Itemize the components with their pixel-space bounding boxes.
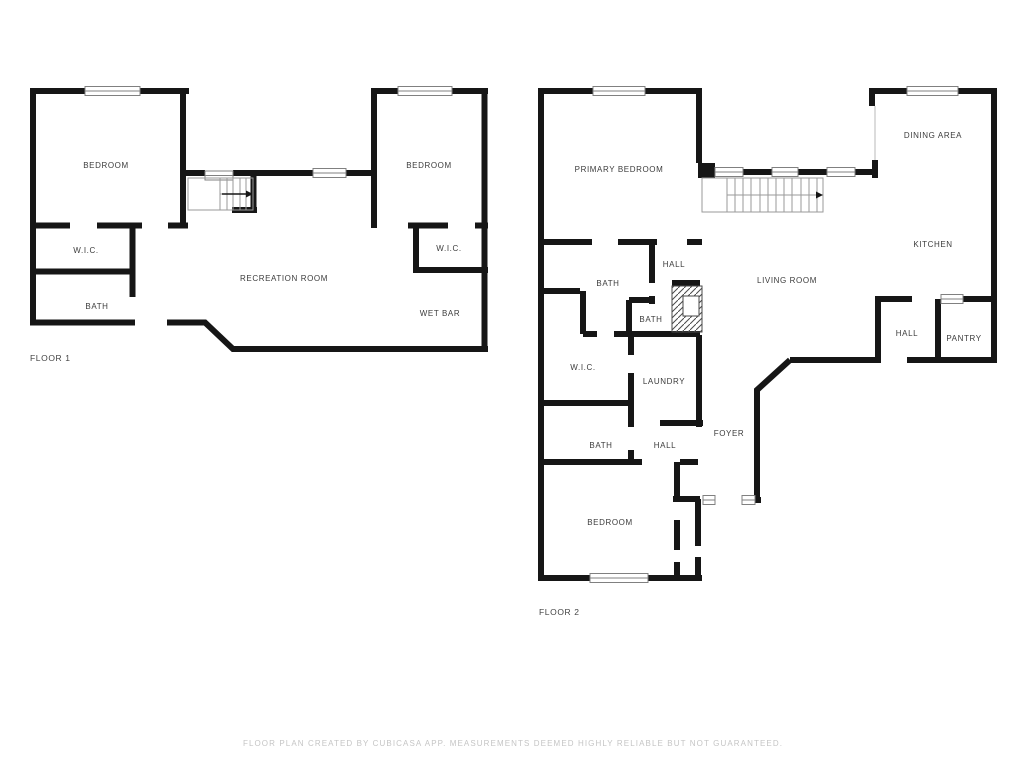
floor1-title: FLOOR 1 [30,353,71,363]
floor2-hall-top-label: HALL [663,260,685,269]
floor1-plan: BEDROOM BEDROOM W.I.C. BATH RECREATION R… [30,87,488,364]
floor1-wet-bar-label: WET BAR [420,309,461,318]
floor1-bedroom-right-label: BEDROOM [406,161,452,170]
floor2-pantry-label: PANTRY [946,334,981,343]
floor2-hall-bottom-label: HALL [654,441,676,450]
floor2-bath-top-label: BATH [596,279,619,288]
footer-disclaimer: FLOOR PLAN CREATED BY CUBICASA APP. MEAS… [243,739,783,748]
floor2-wic-label: W.I.C. [570,363,595,372]
floor1-bath-label: BATH [85,302,108,311]
floor2-living-room-label: LIVING ROOM [757,276,817,285]
floor2-laundry-label: LAUNDRY [643,377,685,386]
floor2-plan: PRIMARY BEDROOM DINING AREA KITCHEN LIVI… [538,87,997,618]
floor1-windows [85,87,452,181]
floor2-dining-area-label: DINING AREA [904,131,962,140]
floor1-recreation-room-label: RECREATION ROOM [240,274,328,283]
floor2-staircase [702,178,823,212]
floor2-title: FLOOR 2 [539,607,580,617]
floor2-primary-bedroom-label: PRIMARY BEDROOM [575,165,664,174]
floor1-bedroom-left-label: BEDROOM [83,161,129,170]
fireplace-chimney-icon [672,280,702,332]
floor2-bath-mid-label: BATH [639,315,662,324]
floor2-bedroom-label: BEDROOM [587,518,633,527]
floor-plan-canvas: BEDROOM BEDROOM W.I.C. BATH RECREATION R… [0,0,1024,768]
stair-direction-arrow-icon [816,192,823,199]
floor1-wic-right-label: W.I.C. [436,244,461,253]
floor2-foyer-label: FOYER [714,429,745,438]
floor2-walls [538,88,997,581]
floor2-kitchen-label: KITCHEN [913,240,952,249]
floor-plan-page: BEDROOM BEDROOM W.I.C. BATH RECREATION R… [0,0,1024,768]
floor2-hall-right-label: HALL [896,329,918,338]
floor1-staircase [188,178,253,210]
floor1-wic-left-label: W.I.C. [73,246,98,255]
floor2-bath-bottom-label: BATH [589,441,612,450]
